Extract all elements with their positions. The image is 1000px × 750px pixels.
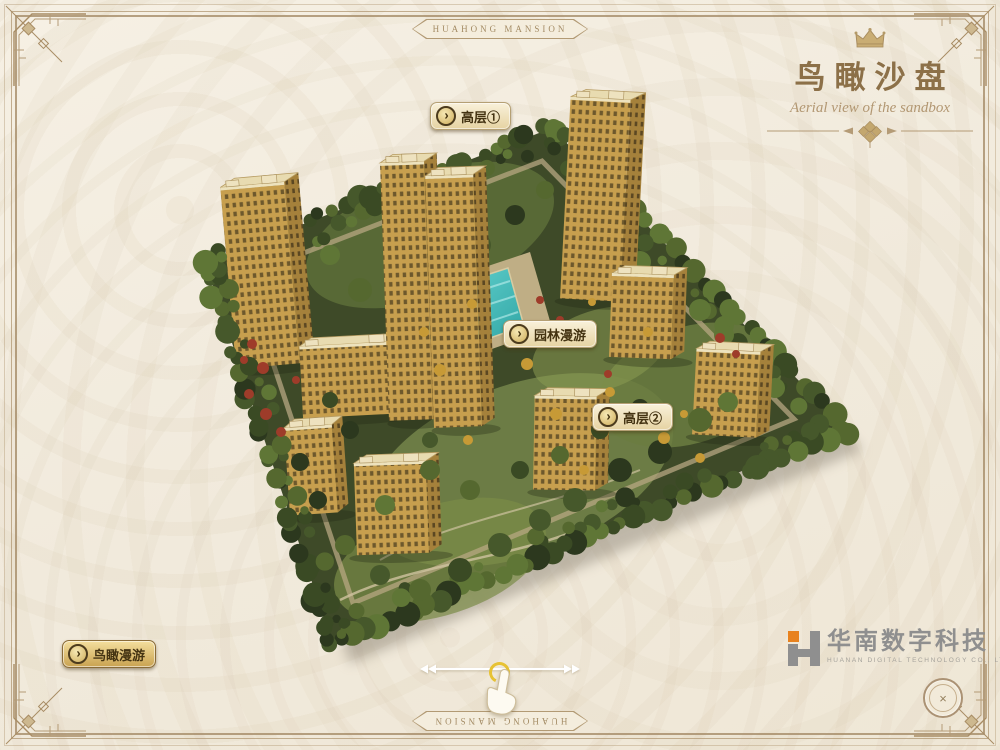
- frame-top-label: HUAHONG MANSION: [412, 19, 588, 39]
- page-subtitle: Aerial view of the sandbox: [762, 100, 978, 117]
- marker-highrise-2-label: 高层②: [623, 408, 662, 427]
- marker-aerial-tour-button[interactable]: › 鸟瞰漫游: [62, 640, 156, 668]
- arrow-circle-icon: ›: [598, 407, 618, 427]
- frame-bottom-label: HUAHONG MANSION: [412, 711, 588, 731]
- close-icon: ×: [939, 691, 947, 706]
- page-title-block: 鸟瞰沙盘 Aerial view of the sandbox: [762, 28, 978, 156]
- company-name-en: HUANAN DIGITAL TECHNOLOGY CO., LTD: [827, 657, 1000, 664]
- company-name: 华南数字科技: [827, 629, 1000, 655]
- arrow-circle-icon: ›: [509, 324, 529, 344]
- marker-highrise-2-button[interactable]: › 高层②: [592, 403, 673, 431]
- crown-icon: [853, 28, 887, 48]
- title-divider-ornament: [767, 121, 973, 151]
- marker-highrise-1-label: 高层①: [461, 107, 500, 126]
- marker-garden-tour-label: 园林漫游: [534, 325, 586, 344]
- arrow-circle-icon: ›: [436, 106, 456, 126]
- developer-logo: 华南数字科技 HUANAN DIGITAL TECHNOLOGY CO., LT…: [786, 629, 1000, 669]
- huanan-h-logo-icon: [786, 629, 822, 669]
- page-title: 鸟瞰沙盘: [771, 52, 978, 97]
- arrow-circle-icon: ›: [68, 644, 88, 664]
- frame-bottom-label-text: HUAHONG MANSION: [433, 716, 568, 726]
- close-button[interactable]: ×: [923, 678, 963, 718]
- marker-highrise-1-button[interactable]: › 高层①: [430, 102, 511, 130]
- frame-top-label-text: HUAHONG MANSION: [433, 24, 568, 34]
- marker-garden-tour-button[interactable]: › 园林漫游: [503, 320, 597, 348]
- marker-aerial-tour-label: 鸟瞰漫游: [93, 645, 145, 664]
